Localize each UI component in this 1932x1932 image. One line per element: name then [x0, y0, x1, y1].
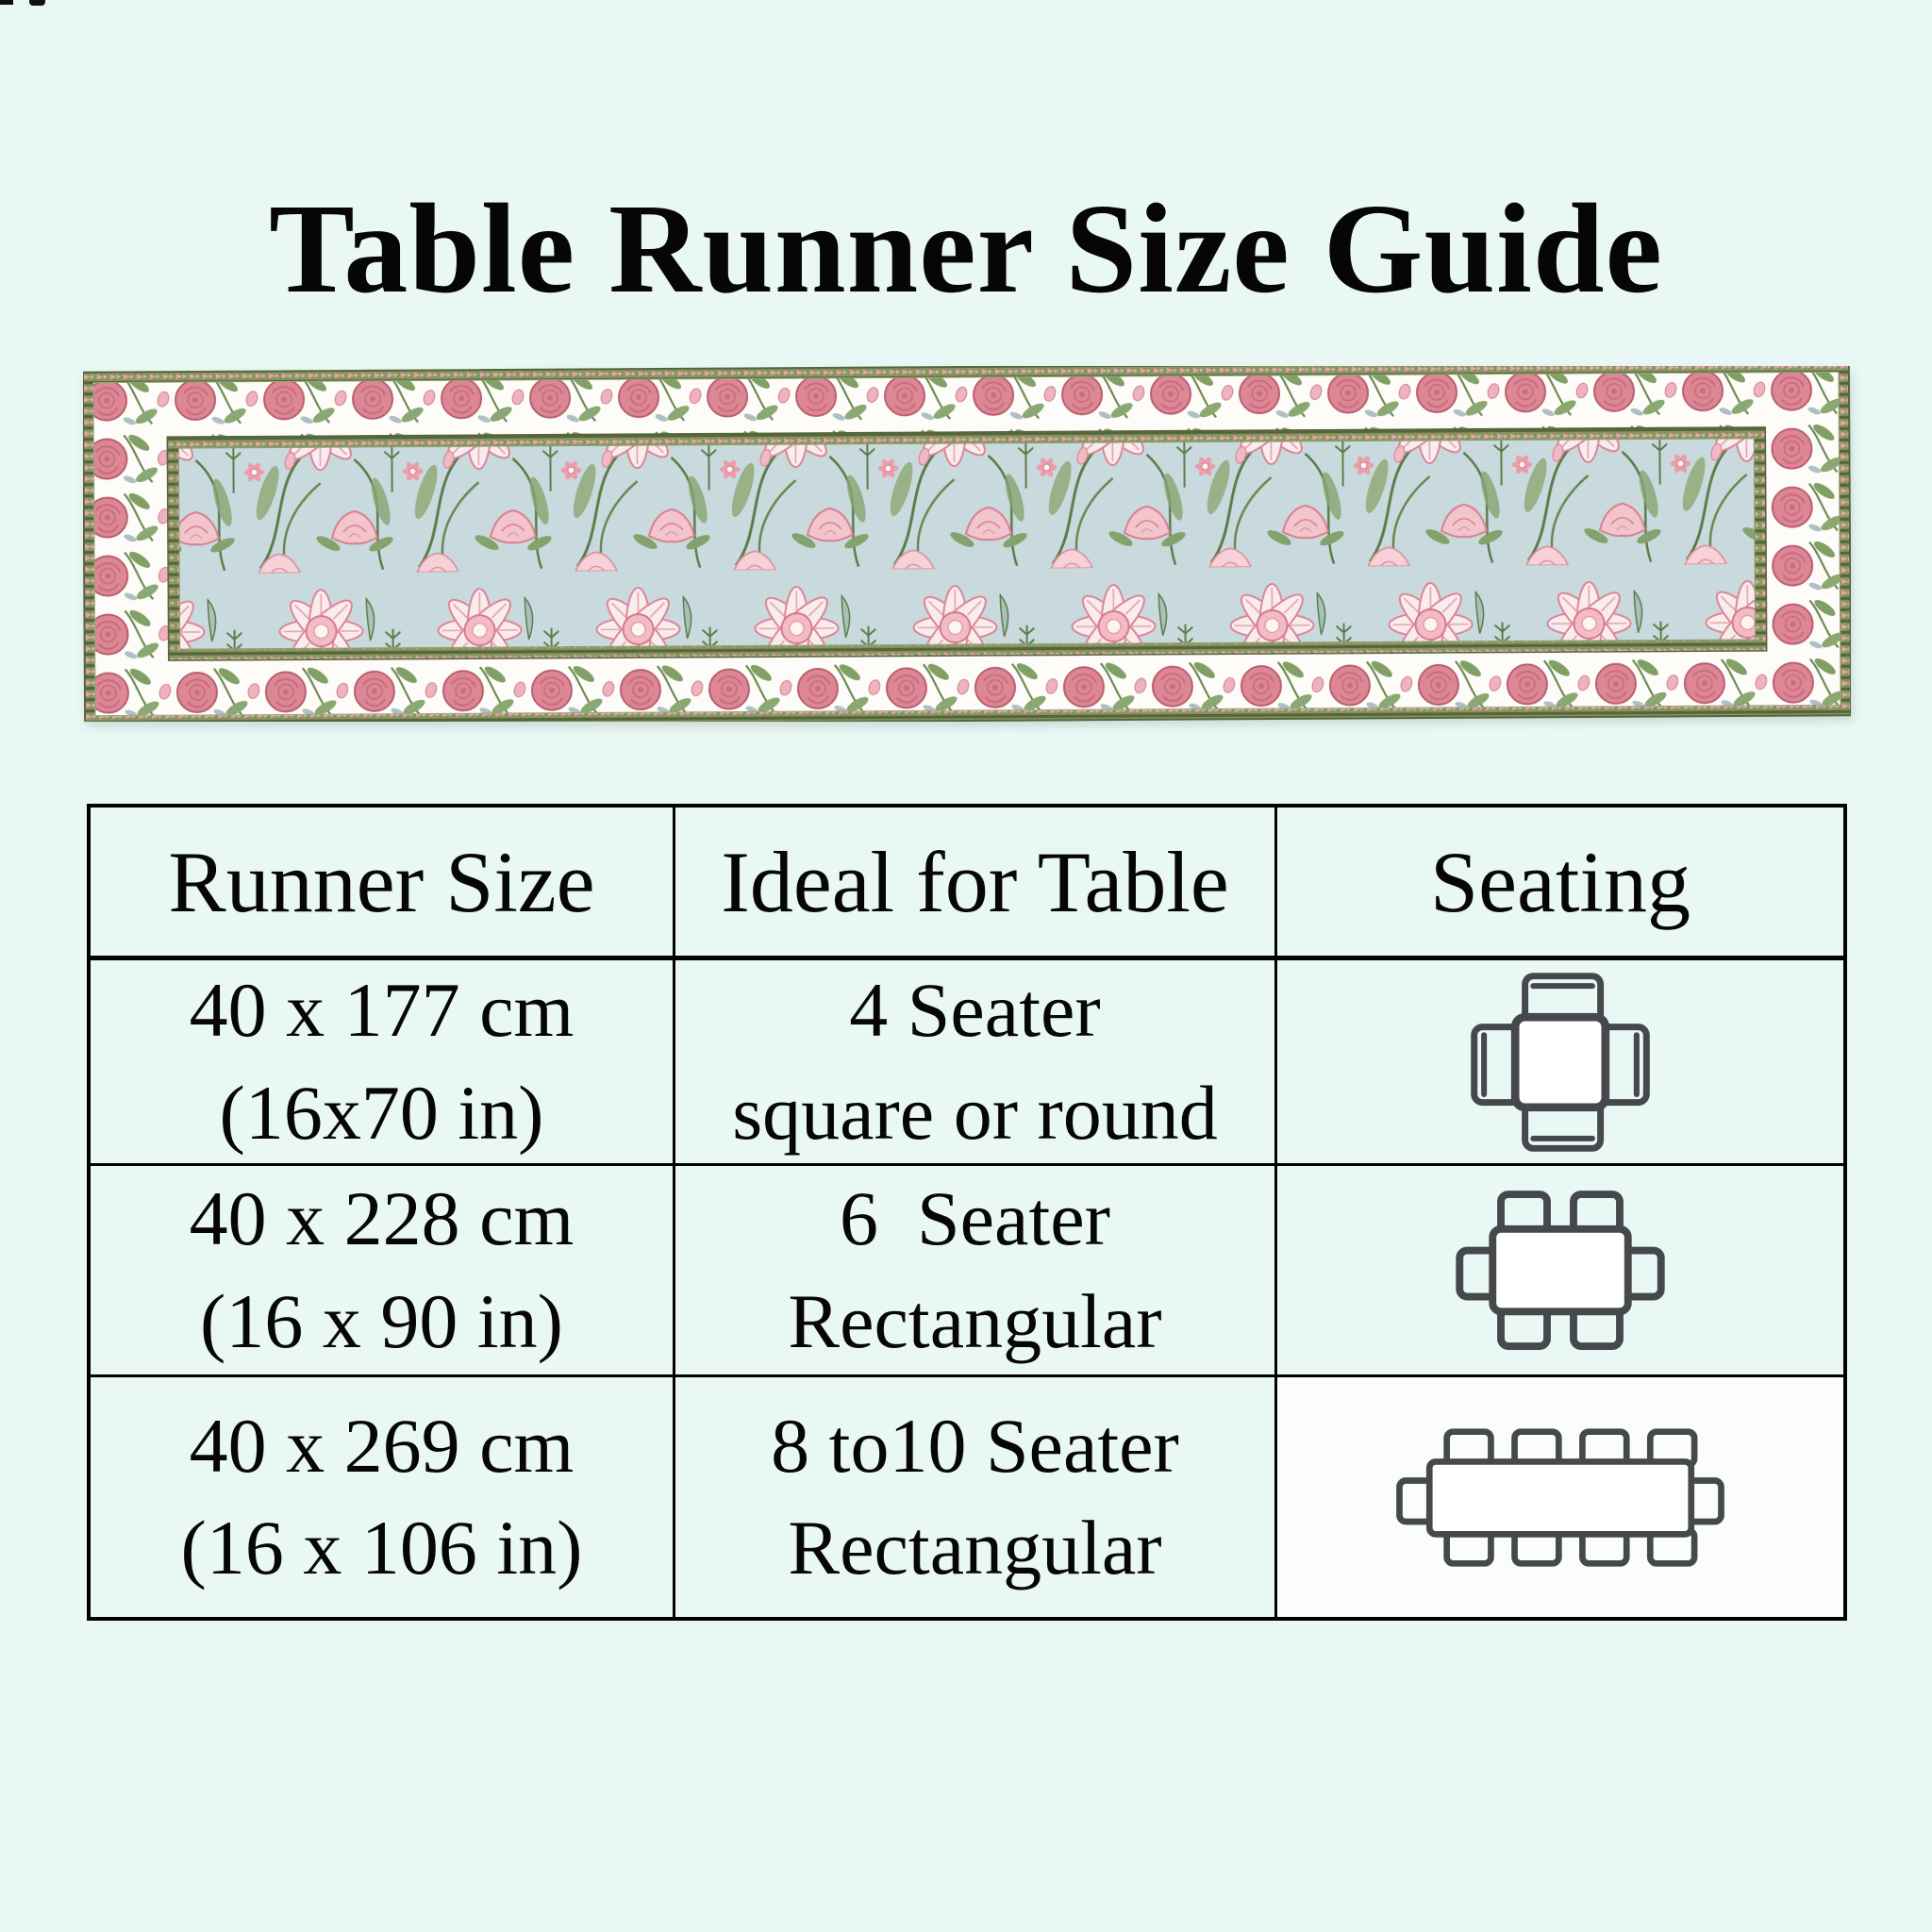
table-row-2-ideal-cell: 6 Seater Rectangular — [675, 1166, 1277, 1377]
table-row-1-seating-cell — [1277, 960, 1843, 1166]
size-guide-table: Runner Size Ideal for Table Seating 40 x… — [87, 804, 1847, 1621]
table-runner-image — [83, 366, 1851, 722]
table-row-3-size-cell: 40 x 269 cm (16 x 106 in) — [91, 1377, 675, 1617]
runner-size-cm: 40 x 269 cm — [190, 1395, 575, 1497]
size-guide-page: Table Runner Size Guide — [0, 0, 1932, 1932]
table-row-3-seating-cell — [1277, 1377, 1843, 1617]
ideal-table-line1: 4 Seater — [849, 959, 1100, 1061]
runner-size-in: (16x70 in) — [220, 1062, 544, 1164]
edge-artifact — [29, 0, 45, 6]
table-row-1-size-cell: 40 x 177 cm (16x70 in) — [91, 960, 675, 1166]
rectangular-table-10-chairs-icon — [1394, 1421, 1726, 1574]
rectangular-table-6-chairs-icon — [1453, 1188, 1668, 1353]
runner-size-cm: 40 x 177 cm — [190, 959, 575, 1061]
header-label: Runner Size — [168, 839, 594, 925]
table-runner-illustration — [83, 366, 1851, 722]
header-seating: Seating — [1277, 808, 1843, 960]
header-label: Ideal for Table — [721, 839, 1228, 925]
edge-artifact — [0, 0, 13, 5]
ideal-table-line2: Rectangular — [788, 1271, 1161, 1373]
table-row-3-ideal-cell: 8 to10 Seater Rectangular — [675, 1377, 1277, 1617]
table-row-2-seating-cell — [1277, 1166, 1843, 1377]
ideal-table-line2: Rectangular — [788, 1497, 1161, 1599]
header-label: Seating — [1430, 839, 1690, 925]
ideal-table-line1: 8 to10 Seater — [771, 1395, 1179, 1497]
runner-size-cm: 40 x 228 cm — [190, 1168, 575, 1270]
header-runner-size: Runner Size — [91, 808, 675, 960]
table-row-1-ideal-cell: 4 Seater square or round — [675, 960, 1277, 1166]
runner-size-in: (16 x 90 in) — [200, 1271, 563, 1373]
ideal-table-line2: square or round — [732, 1062, 1218, 1164]
page-title: Table Runner Size Guide — [0, 185, 1932, 313]
table-row-2-size-cell: 40 x 228 cm (16 x 90 in) — [91, 1166, 675, 1377]
header-ideal-for-table: Ideal for Table — [675, 808, 1277, 960]
runner-size-in: (16 x 106 in) — [181, 1497, 583, 1599]
square-table-4-chairs-icon — [1466, 968, 1655, 1157]
ideal-table-line1: 6 Seater — [840, 1168, 1110, 1270]
